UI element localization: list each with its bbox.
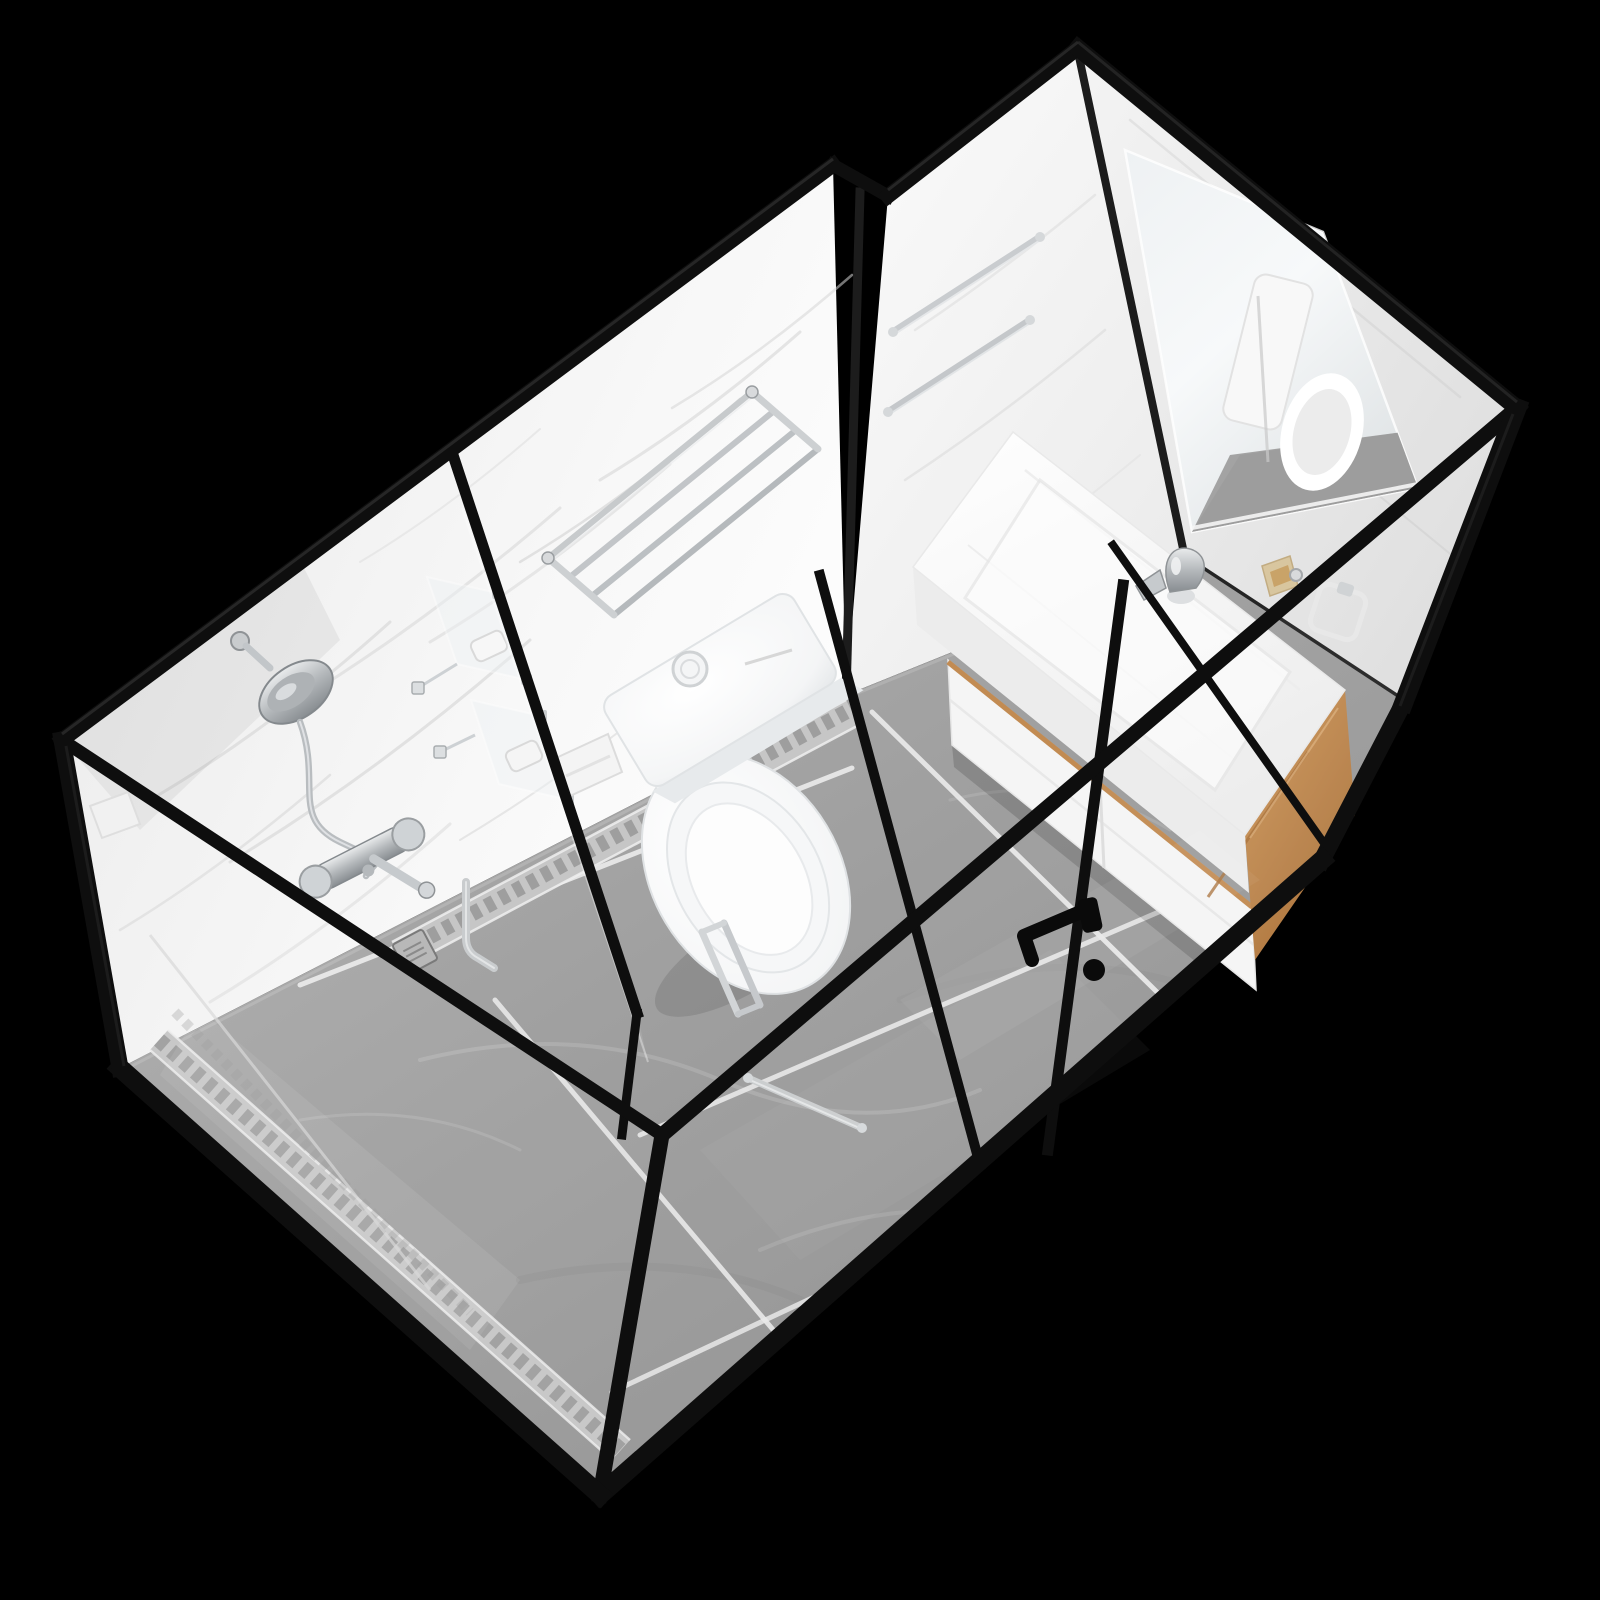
bathroom-pod-render bbox=[0, 0, 1600, 1600]
wall-anchor bbox=[434, 746, 446, 758]
robe-hook bbox=[1290, 569, 1302, 581]
wall-anchor bbox=[412, 682, 424, 694]
flush-button bbox=[673, 652, 707, 686]
